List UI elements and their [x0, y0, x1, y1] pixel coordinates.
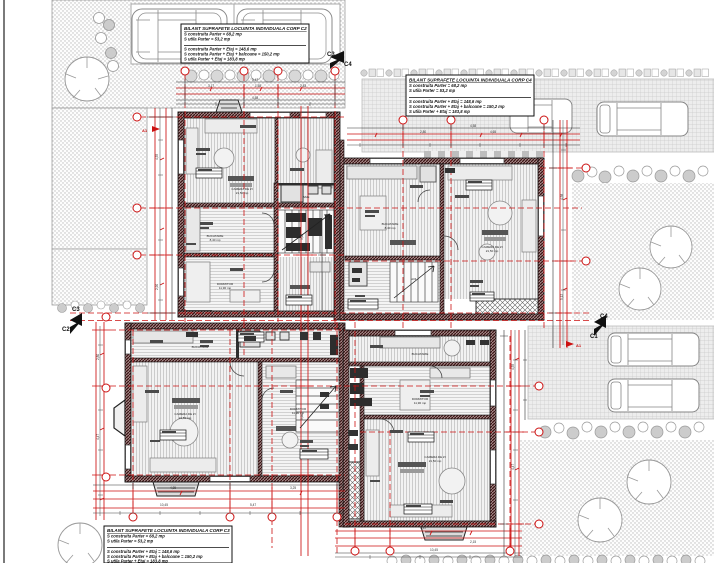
svg-text:S utila Parter + Etaj = 183,8: S utila Parter + Etaj = 183,8 mp: [409, 109, 470, 114]
svg-text:4,58: 4,58: [560, 194, 564, 200]
svg-text:C4: C4: [600, 314, 608, 320]
svg-text:4,47: 4,47: [96, 434, 100, 440]
svg-text:2,80: 2,80: [420, 130, 426, 134]
svg-text:21,50 mp: 21,50 mp: [486, 249, 499, 253]
svg-text:C2: C2: [62, 327, 70, 333]
svg-text:4,47: 4,47: [511, 464, 515, 470]
svg-text:S utila Parter + Etaj = 183,8: S utila Parter + Etaj = 183,8 mp: [184, 57, 245, 62]
svg-text:4,55: 4,55: [155, 154, 159, 160]
svg-text:A1: A1: [142, 128, 148, 133]
svg-text:8,40 mp: 8,40 mp: [385, 226, 396, 230]
svg-text:5,47: 5,47: [252, 78, 258, 82]
svg-text:BILANT SUPRAFETE LOCUINTA INDI: BILANT SUPRAFETE LOCUINTA INDIVIDUALA CO…: [409, 78, 532, 83]
svg-text:11,90 mp: 11,90 mp: [292, 411, 305, 415]
svg-text:2,15: 2,15: [470, 540, 476, 544]
svg-text:2,90: 2,90: [155, 284, 159, 290]
svg-text:4,65: 4,65: [490, 130, 496, 134]
svg-text:5,47: 5,47: [250, 503, 256, 507]
svg-text:10,45: 10,45: [160, 503, 168, 507]
svg-text:11,90 mp: 11,90 mp: [219, 286, 232, 290]
svg-text:BILANT SUPRAFETE LOCUINTA INDI: BILANT SUPRAFETE LOCUINTA INDIVIDUALA CO…: [107, 528, 230, 533]
svg-text:4,85: 4,85: [170, 486, 176, 490]
svg-text:3,17: 3,17: [208, 84, 214, 88]
svg-text:S utila Parter + Etaj = 183,8: S utila Parter + Etaj = 183,8 mp: [107, 559, 168, 563]
svg-text:C4: C4: [344, 62, 352, 68]
svg-text:S utila Parter = 53,2 mp: S utila Parter = 53,2 mp: [184, 37, 231, 42]
svg-text:S utila Parter = 53,2 mp: S utila Parter = 53,2 mp: [107, 539, 154, 544]
svg-text:BUCATARIE: BUCATARIE: [192, 345, 209, 349]
svg-text:BILANT SUPRAFETE LOCUINTA INDI: BILANT SUPRAFETE LOCUINTA INDIVIDUALA CO…: [184, 26, 307, 31]
svg-text:4,58: 4,58: [252, 96, 258, 100]
svg-text:5,12: 5,12: [560, 294, 564, 300]
svg-text:21,50 mp: 21,50 mp: [236, 191, 249, 195]
svg-text:C1: C1: [590, 334, 598, 340]
svg-text:BUCATARIE: BUCATARIE: [412, 352, 429, 356]
svg-text:21,50 mp: 21,50 mp: [429, 459, 442, 463]
svg-text:2,80: 2,80: [96, 354, 100, 360]
svg-text:3,25: 3,25: [290, 486, 296, 490]
svg-text:HOL: HOL: [411, 277, 418, 281]
svg-text:BAIE: BAIE: [303, 195, 310, 199]
svg-text:8,40 mp: 8,40 mp: [210, 238, 221, 242]
svg-text:4,37: 4,37: [420, 526, 426, 530]
svg-text:S utila Parter = 53,2 mp: S utila Parter = 53,2 mp: [409, 88, 456, 93]
svg-text:11,90 mp: 11,90 mp: [414, 401, 427, 405]
svg-text:4,58: 4,58: [470, 124, 476, 128]
svg-text:21,50 mp: 21,50 mp: [179, 416, 192, 420]
svg-text:1,55: 1,55: [255, 84, 261, 88]
svg-text:2,83: 2,83: [300, 84, 306, 88]
svg-text:C3: C3: [327, 52, 335, 58]
svg-text:10,45: 10,45: [430, 548, 438, 552]
svg-text:4,55: 4,55: [511, 364, 515, 370]
svg-text:A1: A1: [576, 343, 582, 348]
svg-text:C3: C3: [72, 307, 80, 313]
